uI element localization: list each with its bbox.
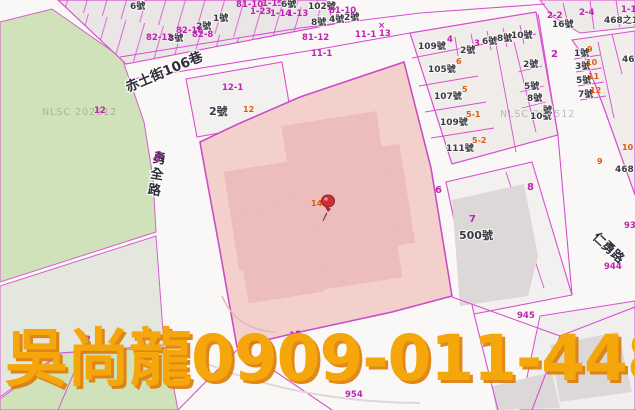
map-label: 12 [94, 106, 106, 116]
map-label: 46 [622, 55, 635, 65]
map-label: 5 [462, 85, 468, 94]
map-label: 105號 [428, 63, 456, 75]
map-label: 8號 [311, 16, 326, 28]
map-label: 12 [590, 86, 601, 95]
map-label: 82-12 [146, 33, 173, 43]
map-label: 2-4 [579, 8, 594, 18]
map-label: 93 [624, 221, 635, 231]
map-label: 82-16 [176, 26, 203, 36]
building-500 [452, 184, 538, 306]
map-label: 81-10 [329, 6, 356, 16]
map-label: 3 [474, 39, 480, 49]
map-label: 2號 [460, 44, 475, 56]
map-label: 109號 [418, 40, 446, 52]
map-label: 8 [527, 182, 534, 193]
map-label: 468 [615, 165, 634, 175]
map-label: 2號 [523, 58, 538, 70]
map-label: 10 [622, 143, 634, 152]
map-label: 5-2 [472, 136, 486, 145]
map-label: 111號 [446, 142, 474, 154]
map-label: 5-1 [466, 110, 481, 119]
map-label: 12-1 [222, 83, 243, 93]
map-label: 81-12 [302, 33, 329, 43]
map-label: 8號 [527, 92, 542, 104]
map-label: 11-1 [355, 30, 376, 40]
map-label: 944 [604, 262, 622, 272]
map-label: 7 [469, 214, 476, 225]
map-label: 1-23 [250, 7, 271, 17]
map-label: 4 [447, 35, 453, 45]
map-label: 6號 [482, 35, 497, 47]
map-label: 2號 [209, 104, 228, 118]
map-label: 945 [517, 311, 535, 321]
map-label: 6號 [130, 0, 145, 12]
map-label: 9 [587, 45, 593, 54]
map-label: 8號 [497, 32, 512, 44]
map-label: 500號 [459, 228, 493, 242]
map-label: 6 [456, 57, 462, 66]
map-label: 1號 [213, 12, 228, 24]
map-label: 107號 [434, 90, 462, 102]
map-label: 14 [311, 199, 323, 208]
map-label: 1-13 [287, 9, 308, 19]
map-label: 6 [435, 185, 442, 196]
map-label: 109號 [440, 116, 468, 128]
map-label: 12 [243, 105, 254, 114]
map-label: 11 [588, 72, 600, 81]
map-label: 2 [551, 49, 558, 60]
map-label: 1-1 [621, 5, 635, 15]
map-label: 10 [586, 58, 598, 67]
map-label: 2-2 [547, 11, 562, 21]
map-label: 13 [379, 29, 391, 39]
map-label: 10號 [511, 29, 533, 41]
map-label: 號 [543, 104, 552, 116]
map-label: 5號 [524, 80, 539, 92]
map-label: 9 [597, 157, 603, 166]
map-label: 11-1 [311, 49, 332, 59]
agent-contact-overlay: 吳尚龍0909-011-448 [5, 327, 635, 390]
map-label: 468之1 [604, 14, 635, 26]
nlsc-watermark: NLSC 202512 [42, 107, 117, 118]
